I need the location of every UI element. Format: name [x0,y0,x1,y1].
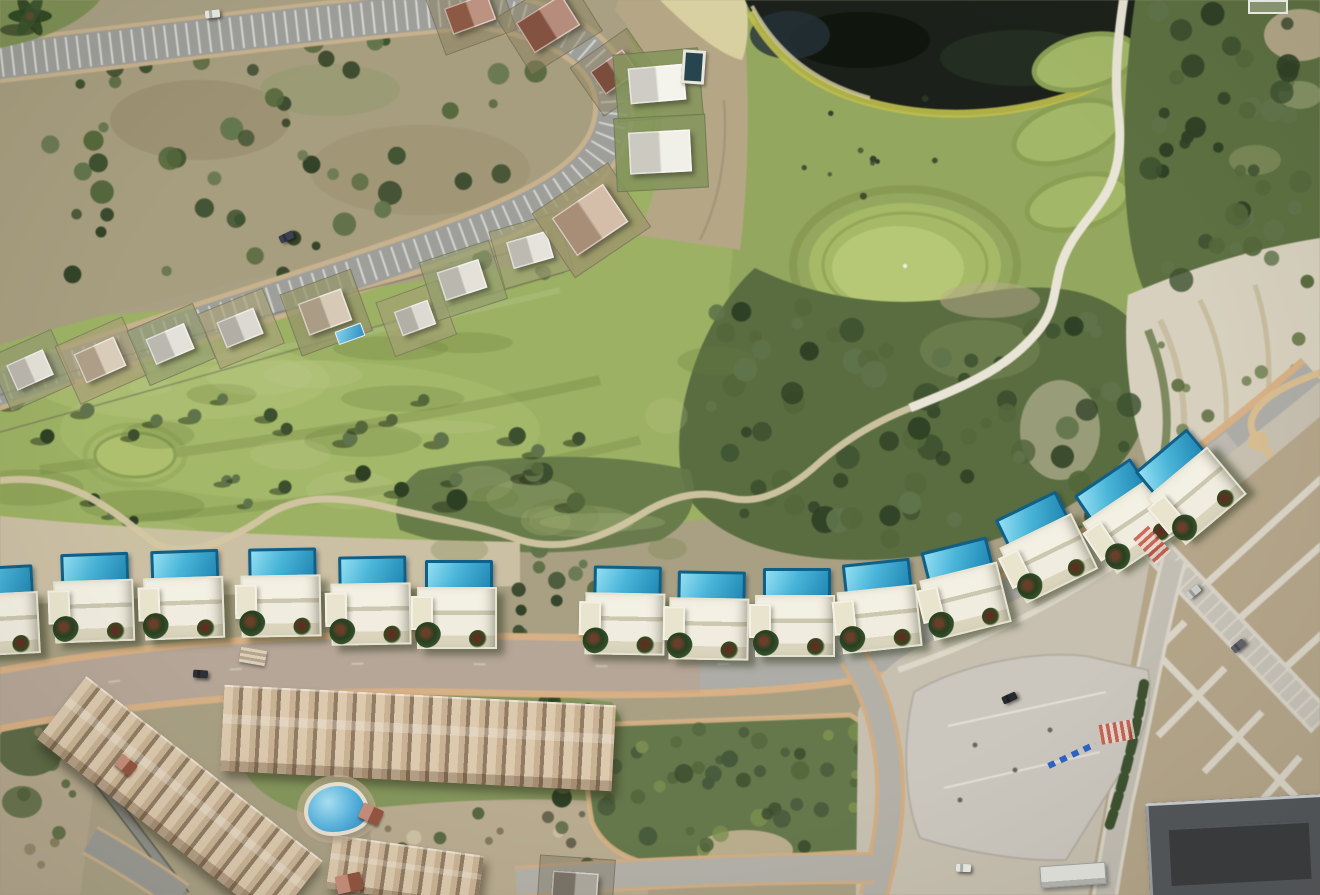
aerial-satellite-map [0,0,1320,895]
new-villa-render [664,570,758,676]
new-villa-render [0,564,50,673]
villa-palm-tree-icon [753,630,779,656]
crosswalk-marking [1099,719,1136,745]
scene-objects-layer [0,0,1320,895]
apartment-block [220,685,616,791]
lap-pool [681,49,706,85]
new-villa-render [138,548,234,655]
painted-road-marking [1047,741,1097,768]
villa-palm-tree-icon [415,622,441,648]
building-courtyard [1169,821,1312,886]
house-roof [551,870,599,895]
new-villa-render [413,560,505,664]
house-roof [628,64,687,105]
existing-house [536,854,614,895]
rooftop-structure [1248,0,1288,14]
new-villa-render [48,551,144,658]
new-villa-render [326,555,420,661]
light-roof-building [1039,862,1106,889]
car [1185,584,1202,600]
car [956,864,971,873]
car [278,230,295,244]
dark-commercial-building [1145,793,1320,895]
car [1001,691,1018,704]
car [193,669,209,678]
villa-palm-tree-icon [807,638,825,656]
car [205,9,221,19]
existing-house [613,114,707,191]
street-stairs [239,646,267,666]
new-villa-render [580,565,674,671]
new-villa-render [751,568,843,672]
new-villa-render [236,547,330,653]
villa-palm-tree-icon [469,630,487,648]
car [1230,638,1247,654]
house-roof [628,129,692,174]
existing-house [279,269,370,354]
